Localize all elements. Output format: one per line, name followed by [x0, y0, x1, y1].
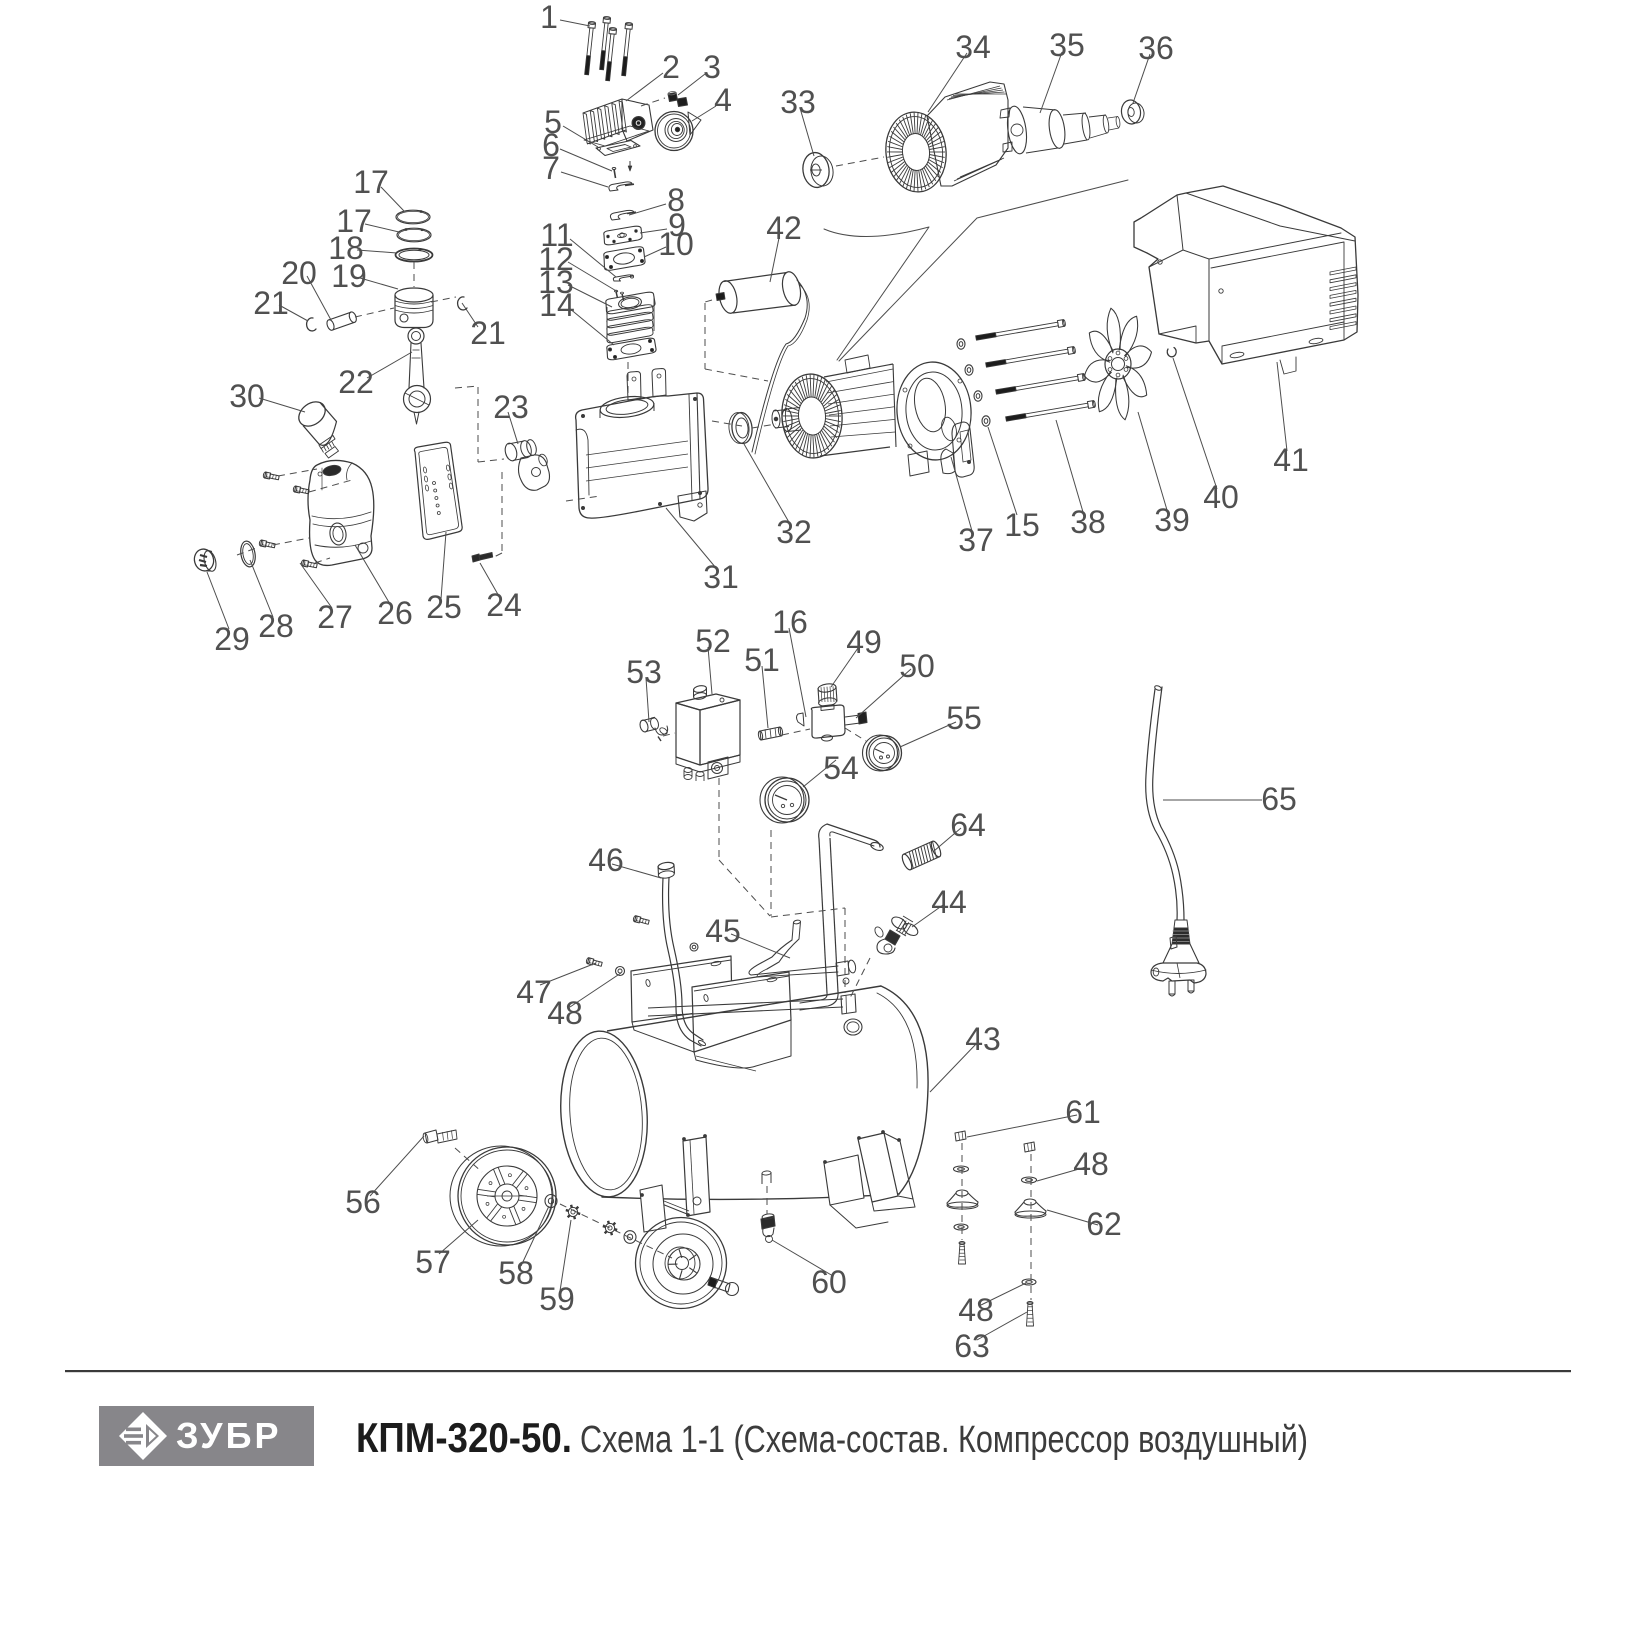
svg-text:54: 54	[823, 750, 859, 786]
svg-text:19: 19	[331, 258, 367, 294]
svg-text:22: 22	[338, 364, 374, 400]
svg-text:59: 59	[539, 1281, 575, 1317]
svg-text:52: 52	[695, 623, 731, 659]
svg-text:60: 60	[811, 1264, 847, 1300]
svg-text:63: 63	[954, 1328, 990, 1364]
svg-text:58: 58	[498, 1255, 534, 1291]
svg-text:2: 2	[662, 49, 680, 85]
svg-text:57: 57	[415, 1244, 451, 1280]
svg-text:50: 50	[899, 648, 935, 684]
svg-text:36: 36	[1138, 30, 1174, 66]
svg-text:53: 53	[626, 654, 662, 690]
svg-text:17: 17	[353, 164, 389, 200]
svg-text:24: 24	[486, 587, 522, 623]
svg-text:7: 7	[542, 150, 560, 186]
svg-text:48: 48	[547, 995, 583, 1031]
svg-text:48: 48	[958, 1292, 994, 1328]
svg-text:48: 48	[1073, 1146, 1109, 1182]
svg-text:ЗУБР: ЗУБР	[176, 1415, 281, 1456]
svg-text:10: 10	[658, 226, 694, 262]
svg-text:64: 64	[950, 807, 986, 843]
svg-text:35: 35	[1049, 27, 1085, 63]
svg-text:КПМ-320-50.: КПМ-320-50.	[356, 1414, 572, 1461]
svg-text:39: 39	[1154, 502, 1190, 538]
svg-text:62: 62	[1086, 1206, 1122, 1242]
svg-text:21: 21	[253, 285, 289, 321]
svg-text:51: 51	[744, 642, 780, 678]
svg-text:65: 65	[1261, 781, 1297, 817]
svg-text:28: 28	[258, 608, 294, 644]
svg-text:45: 45	[705, 913, 741, 949]
svg-text:15: 15	[1004, 507, 1040, 543]
svg-text:44: 44	[931, 884, 967, 920]
svg-text:46: 46	[588, 842, 624, 878]
svg-text:27: 27	[317, 599, 353, 635]
svg-text:38: 38	[1070, 504, 1106, 540]
svg-text:41: 41	[1273, 442, 1309, 478]
svg-text:4: 4	[714, 82, 732, 118]
svg-text:33: 33	[780, 84, 816, 120]
svg-text:16: 16	[772, 604, 808, 640]
svg-text:56: 56	[345, 1184, 381, 1220]
svg-text:14: 14	[539, 287, 575, 323]
svg-text:25: 25	[426, 589, 462, 625]
svg-text:49: 49	[846, 624, 882, 660]
svg-text:42: 42	[766, 210, 802, 246]
svg-text:23: 23	[493, 389, 529, 425]
svg-text:37: 37	[958, 522, 994, 558]
svg-text:31: 31	[703, 559, 739, 595]
svg-text:Схема 1-1 (Схема-состав. Компр: Схема 1-1 (Схема-состав. Компрессор возд…	[580, 1419, 1308, 1461]
svg-text:32: 32	[776, 514, 812, 550]
svg-text:40: 40	[1203, 479, 1239, 515]
svg-text:61: 61	[1065, 1094, 1101, 1130]
svg-text:3: 3	[703, 49, 721, 85]
svg-text:55: 55	[946, 700, 982, 736]
svg-text:1: 1	[540, 0, 558, 35]
svg-text:43: 43	[965, 1021, 1001, 1057]
svg-text:34: 34	[955, 29, 991, 65]
svg-text:26: 26	[377, 595, 413, 631]
svg-text:30: 30	[229, 378, 265, 414]
svg-text:21: 21	[470, 315, 506, 351]
svg-text:29: 29	[214, 621, 250, 657]
